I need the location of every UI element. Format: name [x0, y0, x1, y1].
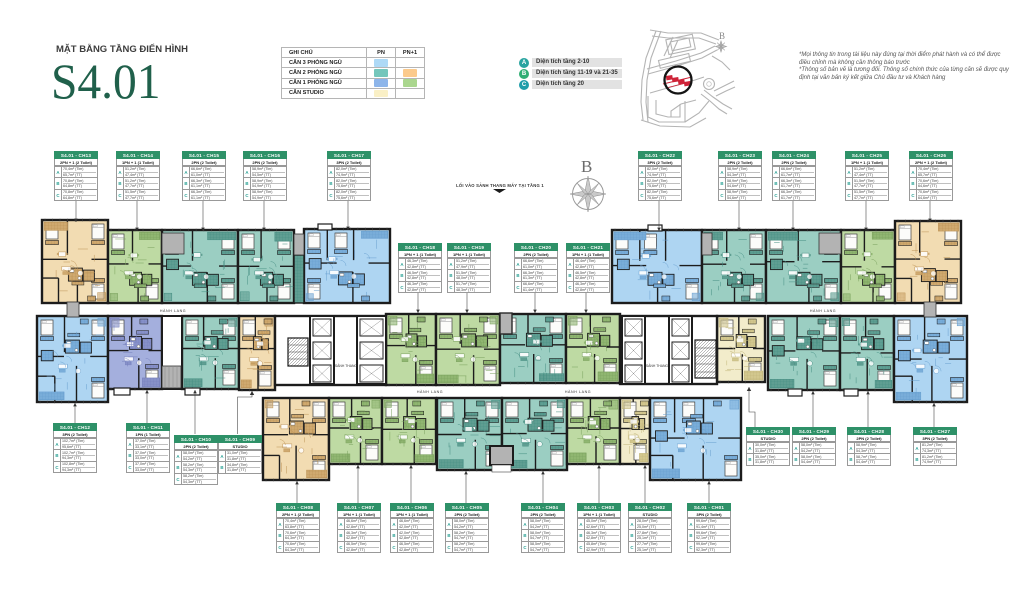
svg-text:HÀNH LANG: HÀNH LANG: [160, 309, 186, 313]
svg-text:B: B: [581, 157, 592, 176]
svg-text:SẢNH THANG: SẢNH THANG: [335, 363, 358, 368]
svg-text:HÀNH LANG: HÀNH LANG: [810, 309, 836, 313]
svg-text:SẢNH THANG: SẢNH THANG: [646, 363, 669, 368]
svg-text:B: B: [719, 31, 725, 41]
svg-text:HÀNH LANG: HÀNH LANG: [565, 390, 591, 394]
svg-text:LỐI VÀO SẢNH THANG MÁY TẠI TẦN: LỐI VÀO SẢNH THANG MÁY TẠI TẦNG 1: [456, 183, 544, 188]
svg-text:HÀNH LANG: HÀNH LANG: [417, 390, 443, 394]
